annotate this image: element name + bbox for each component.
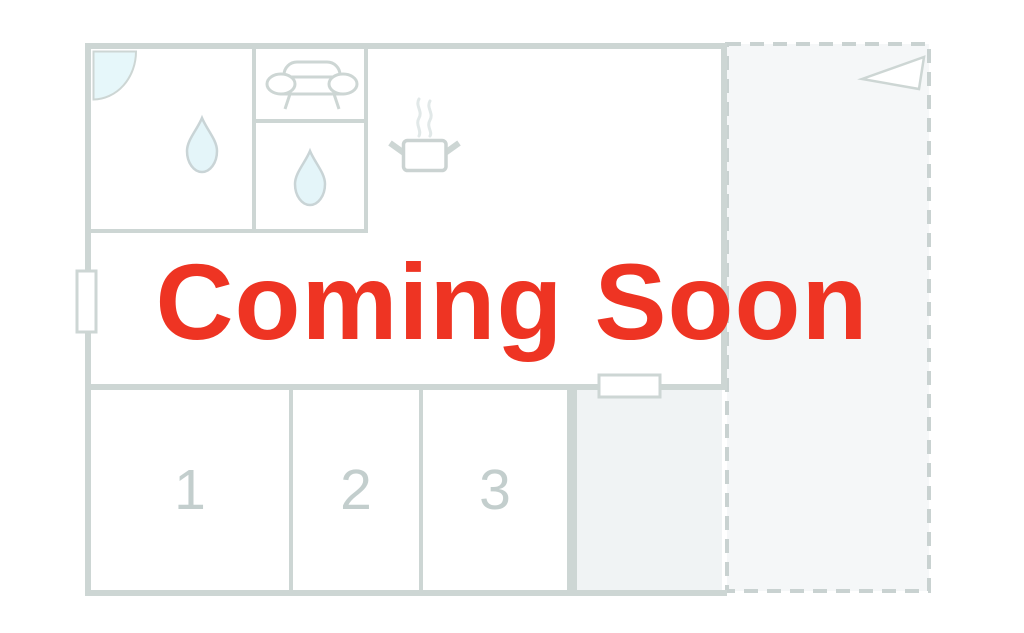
steam (429, 101, 431, 136)
steaming-pot-icon (390, 99, 459, 171)
sofa-leg (285, 94, 290, 109)
water-drop-icon (187, 118, 217, 172)
steam (418, 99, 420, 136)
floorplan-placeholder: 1 2 3 Coming Soon (0, 0, 1024, 633)
door-swing-icon (94, 52, 137, 100)
window-icon (599, 375, 660, 397)
sofa-icon (267, 62, 357, 109)
coming-soon-title: Coming Soon (0, 248, 1024, 356)
room-label-3: 3 (423, 390, 567, 590)
sofa-armrest (329, 74, 357, 94)
utility-room-fill (577, 390, 722, 590)
room-label-2: 2 (293, 390, 419, 590)
sofa-leg (334, 94, 339, 109)
room-label-1: 1 (91, 390, 289, 590)
water-drop-icon (295, 151, 325, 205)
sofa-armrest (267, 74, 295, 94)
pot-body (404, 141, 447, 171)
